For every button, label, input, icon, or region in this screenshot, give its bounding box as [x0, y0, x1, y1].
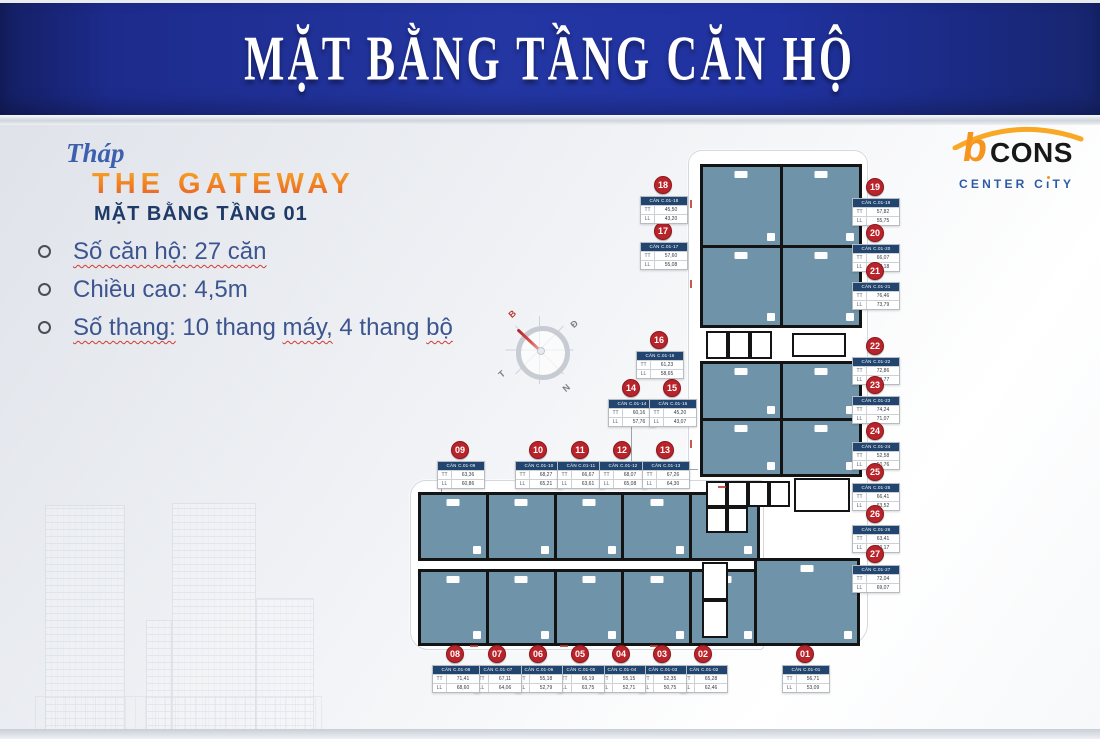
unit-number-badge: 18 [654, 176, 672, 194]
unit-area-row: TT68,07 [600, 470, 646, 479]
unit-number-badge: 25 [866, 463, 884, 481]
area-tt-value: 55,15 [613, 675, 645, 683]
tower-script-label: Tháp [66, 138, 125, 169]
unit-area-row: TT66,41 [853, 492, 899, 501]
banner-bottom-edge [0, 115, 1100, 125]
unit-code: CĂN C.01-08 [433, 666, 479, 674]
area-ll-value: 55,08 [655, 261, 687, 269]
area-tt-value: 61,23 [651, 361, 683, 369]
stair-core-box [702, 600, 728, 638]
unit-number-badge: 20 [866, 224, 884, 242]
lift-core-box [706, 507, 727, 533]
unit-number-badge: 17 [654, 222, 672, 240]
unit-badge-12: 12CĂN C.01-12TT68,07LL65,08 [599, 441, 645, 489]
lift-core-box [728, 331, 750, 359]
area-tt-value: 45,50 [655, 206, 687, 214]
area-row-label: TT [853, 535, 867, 543]
unit-number-badge: 12 [613, 441, 631, 459]
unit-number-badge: 22 [866, 337, 884, 355]
area-tt-value: 63,36 [452, 471, 484, 479]
unit-number-badge: 23 [866, 376, 884, 394]
area-row-label: LL [438, 480, 452, 488]
area-row-label: TT [609, 409, 623, 417]
unit-badge-11: 11CĂN C.01-11TT66,67LL63,61 [557, 441, 603, 489]
area-tt-value: 52,35 [654, 675, 686, 683]
area-row-label: LL [783, 684, 797, 692]
bullet-text-segment: Chiều cao: 4,5m [73, 276, 248, 303]
unit-area-row: TT66,19 [558, 674, 604, 683]
unit-area-row: TT71,41 [433, 674, 479, 683]
area-ll-value: 52,79 [530, 684, 562, 692]
unit-area-row: TT57,60 [641, 251, 687, 260]
area-ll-value: 50,75 [654, 684, 686, 692]
floor-plan-title: MẶT BẰNG TẦNG 01 [94, 203, 308, 226]
unit-code: CĂN C.01-09 [438, 462, 484, 470]
area-ll-value: 64,30 [657, 480, 689, 488]
unit-code: CĂN C.01-23 [853, 397, 899, 405]
area-ll-value: 60,86 [452, 480, 484, 488]
apartment-room [421, 495, 486, 558]
unit-code: CĂN C.01-26 [853, 526, 899, 534]
unit-area-row: LL52,71 [599, 683, 645, 692]
unit-area-row: LL64,06 [475, 683, 521, 692]
unit-number-badge: 15 [663, 379, 681, 397]
unit-area-row: TT66,67 [558, 470, 604, 479]
area-row-label: TT [853, 575, 867, 583]
unit-code: CĂN C.01-17 [641, 243, 687, 251]
bullet-text: Chiều cao: 4,5m [73, 274, 248, 305]
area-tt-value: 56,71 [797, 675, 829, 683]
unit-code: CĂN C.01-27 [853, 566, 899, 574]
logo-subtitle-text: CENTER C [959, 177, 1046, 191]
unit-code: CĂN C.01-12 [600, 462, 646, 470]
area-tt-value: 57,60 [655, 252, 687, 260]
plan-rooms-top-block [700, 164, 862, 328]
logo-subtitle-text: TY [1052, 177, 1074, 191]
title-banner: MẶT BẰNG TẦNG CĂN HỘ [0, 3, 1100, 115]
area-row-label: TT [853, 254, 867, 262]
bullet-text: Số thang: 10 thang máy, 4 thang bộ [73, 312, 453, 343]
unit-number-badge: 04 [612, 645, 630, 663]
unit-code: CĂN C.01-01 [783, 666, 829, 674]
unit-code: CĂN C.01-15 [650, 400, 696, 408]
page-bottom-edge [0, 729, 1100, 739]
unit-area-table: CĂN C.01-08TT71,41LL68,60 [432, 665, 480, 693]
unit-number-badge: 16 [650, 331, 668, 349]
unit-area-table: CĂN C.01-16TT61,23LL58,65 [636, 351, 684, 379]
bullet-text-segment: bộ [426, 314, 453, 341]
unit-area-table: CĂN C.01-19TT57,82LL55,75 [852, 198, 900, 226]
unit-number-badge: 02 [694, 645, 712, 663]
apartment-room [624, 572, 689, 643]
unit-number-badge: 03 [653, 645, 671, 663]
bullet-marker-icon [38, 321, 51, 334]
area-ll-value: 68,60 [447, 684, 479, 692]
area-row-label: TT [643, 471, 657, 479]
unit-badge-25: 25CĂN C.01-25TT66,41LL63,52 [852, 463, 898, 511]
bullet-marker-icon [38, 245, 51, 258]
bullet-text-segment: máy, [283, 314, 333, 341]
unit-area-row: TT72,86 [853, 366, 899, 375]
unit-code: CĂN C.01-21 [853, 283, 899, 291]
unit-area-table: CĂN C.01-15TT45,20LL43,07 [649, 399, 697, 427]
area-row-label: LL [609, 418, 623, 426]
unit-area-table: CĂN C.01-17TT57,60LL55,08 [640, 242, 688, 270]
unit-badge-16: 16CĂN C.01-16TT61,23LL58,65 [636, 331, 682, 379]
area-row-label: TT [783, 675, 797, 683]
area-ll-value: 53,09 [797, 684, 829, 692]
area-row-label: LL [637, 370, 651, 378]
unit-number-badge: 26 [866, 505, 884, 523]
unit-area-row: TT63,36 [438, 470, 484, 479]
unit-badge-18: 18CĂN C.01-18TT45,50LL43,20 [640, 176, 686, 224]
apartment-room [783, 167, 860, 245]
area-row-label: LL [558, 480, 572, 488]
area-tt-value: 65,28 [695, 675, 727, 683]
unit-area-row: TT57,82 [853, 207, 899, 216]
unit-code: CĂN C.01-02 [681, 666, 727, 674]
area-ll-value: 43,07 [664, 418, 696, 426]
unit-area-row: LL52,79 [516, 683, 562, 692]
utility-core-box [792, 333, 846, 357]
area-row-label: TT [853, 406, 867, 414]
unit-area-row: TT55,18 [516, 674, 562, 683]
unit-area-table: CĂN C.01-10TT68,27LL65,21 [515, 461, 563, 489]
area-row-label: LL [853, 301, 867, 309]
compass-west-label: T [496, 368, 507, 379]
area-tt-value: 55,18 [530, 675, 562, 683]
unit-number-badge: 08 [446, 645, 464, 663]
unit-area-row: LL58,65 [637, 369, 683, 378]
unit-badge-27: 27CĂN C.01-27TT72,04LL69,07 [852, 545, 898, 593]
unit-code: CĂN C.01-25 [853, 484, 899, 492]
dimension-tick [718, 486, 726, 488]
area-tt-value: 74,24 [867, 406, 899, 414]
unit-area-row: LL73,79 [853, 300, 899, 309]
area-row-label: LL [516, 480, 530, 488]
unit-number-badge: 21 [866, 262, 884, 280]
area-tt-value: 45,20 [664, 409, 696, 417]
area-tt-value: 71,41 [447, 675, 479, 683]
lift-core-box [727, 507, 748, 533]
logo-subtitle: CENTER CıTY [959, 177, 1074, 191]
area-row-label: TT [433, 675, 447, 683]
unit-area-row: LL62,46 [681, 683, 727, 692]
unit-area-row: LL43,20 [641, 214, 687, 223]
unit-number-badge: 01 [796, 645, 814, 663]
page-title: MẶT BẰNG TẦNG CĂN HỘ [244, 23, 855, 95]
unit-area-row: TT74,24 [853, 405, 899, 414]
apartment-room-unit-01 [754, 558, 860, 646]
unit-area-row: TT52,58 [853, 451, 899, 460]
unit-area-row: TT76,46 [853, 291, 899, 300]
area-row-label: LL [853, 584, 867, 592]
area-row-label: TT [438, 471, 452, 479]
bullet-text-segment: Số thang: [73, 314, 176, 341]
unit-area-table: CĂN C.01-27TT72,04LL69,07 [852, 565, 900, 593]
unit-number-badge: 11 [571, 441, 589, 459]
unit-number-badge: 06 [529, 645, 547, 663]
unit-number-badge: 10 [529, 441, 547, 459]
unit-badge-01: 01CĂN C.01-01TT56,71LL53,09 [782, 645, 828, 693]
unit-area-row: LL60,86 [438, 479, 484, 488]
area-row-label: TT [637, 361, 651, 369]
compass-east-label: Đ [568, 318, 580, 330]
apartment-room [421, 572, 486, 643]
compass-south-label: N [560, 382, 572, 394]
unit-area-table: CĂN C.01-12TT68,07LL65,08 [599, 461, 647, 489]
bullet-text-segment: 10 thang [176, 314, 283, 341]
apartment-room [557, 572, 622, 643]
unit-badge-17: 17CĂN C.01-17TT57,60LL55,08 [640, 222, 686, 270]
unit-code: CĂN C.01-18 [641, 197, 687, 205]
unit-code: CĂN C.01-13 [643, 462, 689, 470]
unit-area-table: CĂN C.01-07TT67,11LL64,06 [474, 665, 522, 693]
unit-code: CĂN C.01-07 [475, 666, 521, 674]
area-row-label: TT [600, 471, 614, 479]
area-row-label: TT [853, 208, 867, 216]
area-ll-value: 73,79 [867, 301, 899, 309]
unit-area-row: LL50,75 [640, 683, 686, 692]
unit-area-row: TT68,27 [516, 470, 562, 479]
unit-code: CĂN C.01-10 [516, 462, 562, 470]
unit-area-table: CĂN C.01-23TT74,24LL71,07 [852, 396, 900, 424]
area-tt-value: 72,86 [867, 367, 899, 375]
plan-rooms-mid-block [700, 361, 862, 477]
area-tt-value: 66,41 [867, 493, 899, 501]
unit-number-badge: 05 [571, 645, 589, 663]
apartment-room [557, 495, 622, 558]
info-bullet-list: Số căn hộ: 27 cănChiều cao: 4,5mSố thang… [38, 236, 518, 350]
unit-code: CĂN C.01-24 [853, 443, 899, 451]
unit-area-row: LL53,09 [783, 683, 829, 692]
lift-core-box [727, 481, 748, 507]
logo-subtitle-i: ı [1046, 177, 1053, 191]
unit-number-badge: 14 [622, 379, 640, 397]
unit-area-row: TT55,15 [599, 674, 645, 683]
unit-area-row: TT56,71 [783, 674, 829, 683]
unit-number-badge: 27 [866, 545, 884, 563]
area-ll-value: 63,75 [572, 684, 604, 692]
area-row-label: LL [643, 480, 657, 488]
area-tt-value: 63,41 [867, 535, 899, 543]
unit-area-table: CĂN C.01-04TT55,15LL52,71 [598, 665, 646, 693]
unit-badge-08: 08CĂN C.01-08TT71,41LL68,60 [432, 645, 478, 693]
area-row-label: LL [650, 418, 664, 426]
unit-area-table: CĂN C.01-02TT65,28LL62,46 [680, 665, 728, 693]
unit-area-row: TT67,26 [643, 470, 689, 479]
compass-rose-icon: B Đ T N [501, 311, 579, 389]
logo-brand-text: CONS [990, 138, 1073, 168]
unit-area-table: CĂN C.01-18TT45,50LL43,20 [640, 196, 688, 224]
area-tt-value: 67,11 [489, 675, 521, 683]
area-tt-value: 76,46 [867, 292, 899, 300]
unit-area-row: TT45,50 [641, 205, 687, 214]
area-row-label: TT [641, 252, 655, 260]
unit-area-row: LL43,07 [650, 417, 696, 426]
unit-area-row: LL55,08 [641, 260, 687, 269]
area-row-label: LL [641, 261, 655, 269]
lift-core-box [706, 481, 727, 507]
unit-badge-09: 09CĂN C.01-09TT63,36LL60,86 [437, 441, 483, 489]
unit-area-row: LL63,61 [558, 479, 604, 488]
dimension-tick [690, 200, 692, 208]
area-tt-value: 66,19 [572, 675, 604, 683]
bullet-text-segment: 4 thang [333, 314, 426, 341]
area-ll-value: 43,20 [655, 215, 687, 223]
unit-code: CĂN C.01-05 [558, 666, 604, 674]
unit-code: CĂN C.01-16 [637, 352, 683, 360]
unit-area-table: CĂN C.01-09TT63,36LL60,86 [437, 461, 485, 489]
area-tt-value: 52,58 [867, 452, 899, 460]
unit-area-table: CĂN C.01-11TT66,67LL63,61 [557, 461, 605, 489]
apartment-room [783, 364, 860, 418]
area-tt-value: 57,82 [867, 208, 899, 216]
area-tt-value: 66,07 [867, 254, 899, 262]
lift-core-box [750, 331, 772, 359]
unit-code: CĂN C.01-03 [640, 666, 686, 674]
unit-badge-05: 05CĂN C.01-05TT66,19LL63,75 [557, 645, 603, 693]
area-row-label: LL [641, 215, 655, 223]
area-row-label: LL [433, 684, 447, 692]
unit-area-table: CĂN C.01-01TT56,71LL53,09 [782, 665, 830, 693]
utility-core-box [794, 478, 850, 512]
area-ll-value: 69,07 [867, 584, 899, 592]
unit-number-badge: 13 [656, 441, 674, 459]
area-row-label: TT [641, 206, 655, 214]
area-row-label: TT [516, 471, 530, 479]
area-tt-value: 67,26 [657, 471, 689, 479]
unit-area-table: CĂN C.01-05TT66,19LL63,75 [557, 665, 605, 693]
lift-core-box [706, 331, 728, 359]
unit-area-row: LL65,21 [516, 479, 562, 488]
bullet-marker-icon [38, 283, 51, 296]
unit-badge-21: 21CĂN C.01-21TT76,46LL73,79 [852, 262, 898, 310]
unit-badge-14: 14CĂN C.01-14TT60,16LL57,76 [608, 379, 654, 427]
dimension-tick [690, 280, 692, 288]
unit-code: CĂN C.01-04 [599, 666, 645, 674]
unit-number-badge: 09 [451, 441, 469, 459]
unit-area-table: CĂN C.01-21TT76,46LL73,79 [852, 282, 900, 310]
area-ll-value: 58,65 [651, 370, 683, 378]
logo-b-glyph: b [960, 128, 990, 168]
unit-code: CĂN C.01-11 [558, 462, 604, 470]
area-ll-value: 52,71 [613, 684, 645, 692]
unit-badge-19: 19CĂN C.01-19TT57,82LL55,75 [852, 178, 898, 226]
apartment-room [783, 421, 860, 475]
info-bullet: Chiều cao: 4,5m [38, 274, 518, 305]
apartment-room [489, 495, 554, 558]
apartment-room [783, 248, 860, 326]
unit-area-table: CĂN C.01-06TT55,18LL52,79 [515, 665, 563, 693]
area-ll-value: 64,06 [489, 684, 521, 692]
unit-badge-23: 23CĂN C.01-23TT74,24LL71,07 [852, 376, 898, 424]
stair-core-box [702, 562, 728, 600]
area-row-label: LL [600, 480, 614, 488]
area-row-label: TT [558, 471, 572, 479]
unit-area-row: TT61,23 [637, 360, 683, 369]
area-row-label: TT [853, 292, 867, 300]
unit-area-row: TT63,41 [853, 534, 899, 543]
unit-number-badge: 07 [488, 645, 506, 663]
unit-area-row: TT72,04 [853, 574, 899, 583]
unit-area-row: LL69,07 [853, 583, 899, 592]
unit-area-row: LL65,08 [600, 479, 646, 488]
bullet-text: Số căn hộ: 27 căn [73, 236, 266, 267]
unit-area-row: TT52,35 [640, 674, 686, 683]
unit-code: CĂN C.01-22 [853, 358, 899, 366]
unit-code: CĂN C.01-20 [853, 245, 899, 253]
unit-area-row: TT66,07 [853, 253, 899, 262]
unit-area-row: TT45,20 [650, 408, 696, 417]
lift-core-box [748, 481, 769, 507]
apartment-room [703, 248, 780, 326]
apartment-room [489, 572, 554, 643]
area-row-label: TT [853, 452, 867, 460]
bullet-text-segment: Số căn hộ: 27 căn [73, 238, 266, 265]
unit-number-badge: 24 [866, 422, 884, 440]
apartment-room [703, 167, 780, 245]
unit-area-row: TT67,11 [475, 674, 521, 683]
info-bullet: Số thang: 10 thang máy, 4 thang bộ [38, 312, 518, 343]
bcons-logo: b CONS CENTER CıTY [945, 124, 1097, 198]
apartment-room [624, 495, 689, 558]
tower-name: THE GATEWAY [92, 168, 355, 201]
unit-code: CĂN C.01-06 [516, 666, 562, 674]
info-bullet: Số căn hộ: 27 căn [38, 236, 518, 267]
unit-badge-13: 13CĂN C.01-13TT67,26LL64,30 [642, 441, 688, 489]
area-tt-value: 72,04 [867, 575, 899, 583]
unit-badge-15: 15CĂN C.01-15TT45,20LL43,07 [649, 379, 695, 427]
unit-code: CĂN C.01-19 [853, 199, 899, 207]
dimension-tick [690, 440, 692, 448]
unit-area-row: TT65,28 [681, 674, 727, 683]
apartment-room [703, 421, 780, 475]
compass-hub [537, 347, 545, 355]
unit-area-row: LL63,75 [558, 683, 604, 692]
unit-area-row: LL64,30 [643, 479, 689, 488]
unit-badge-07: 07CĂN C.01-07TT67,11LL64,06 [474, 645, 520, 693]
unit-area-row: LL68,60 [433, 683, 479, 692]
area-ll-value: 62,46 [695, 684, 727, 692]
area-row-label: TT [650, 409, 664, 417]
unit-badge-10: 10CĂN C.01-10TT68,27LL65,21 [515, 441, 561, 489]
unit-number-badge: 19 [866, 178, 884, 196]
apartment-room [703, 364, 780, 418]
lift-core-box [769, 481, 790, 507]
unit-area-table: CĂN C.01-13TT67,26LL64,30 [642, 461, 690, 489]
unit-area-table: CĂN C.01-03TT52,35LL50,75 [639, 665, 687, 693]
area-row-label: TT [853, 367, 867, 375]
area-row-label: TT [853, 493, 867, 501]
